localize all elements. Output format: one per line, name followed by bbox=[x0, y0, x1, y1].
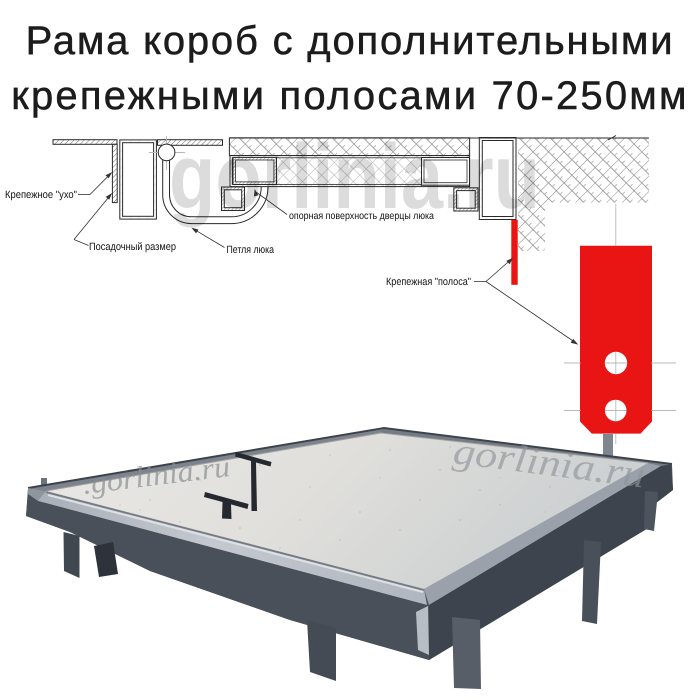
svg-text:Крепежное "ухо": Крепежное "ухо" bbox=[5, 189, 77, 201]
svg-text:Крепежная "полоса": Крепежная "полоса" bbox=[386, 276, 471, 288]
svg-text:опорная поверхность дверцы люк: опорная поверхность дверцы люка bbox=[289, 211, 434, 222]
svg-text:Петля люка: Петля люка bbox=[227, 244, 275, 256]
svg-text:Посадочный размер: Посадочный размер bbox=[89, 241, 176, 253]
